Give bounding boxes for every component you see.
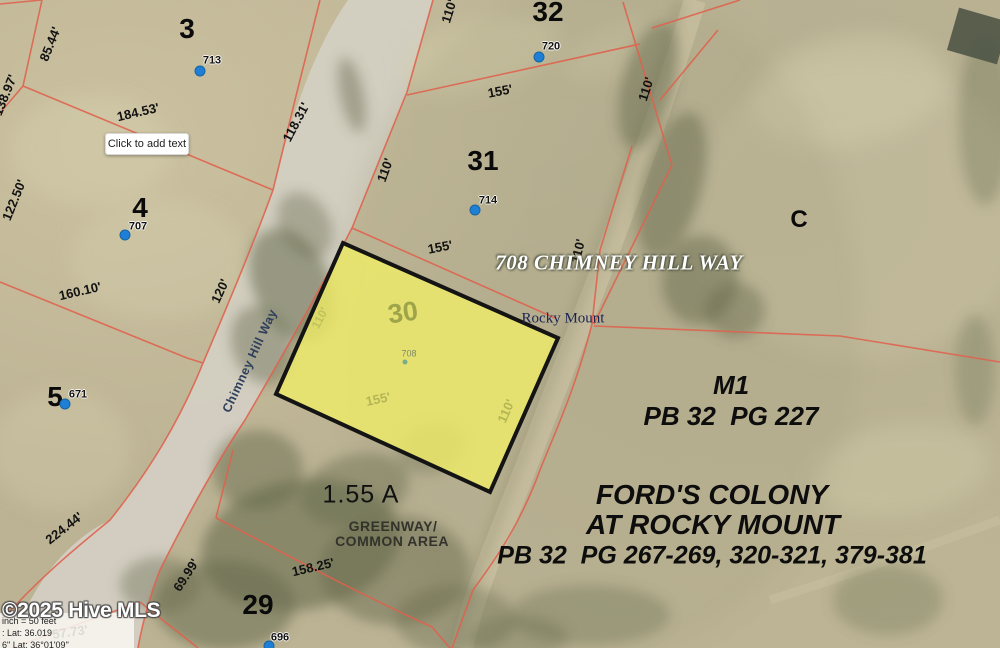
- click-to-add-text-label: Click to add text: [108, 138, 186, 150]
- greenway-label-2: COMMON AREA: [335, 534, 449, 548]
- greenway-label-1: GREENWAY/: [349, 519, 438, 533]
- mls-watermark: ©2025 Hive MLS: [2, 599, 160, 623]
- address-banner: 708 CHIMNEY HILL WAY: [495, 253, 742, 274]
- parcel-marker-label: 707: [129, 222, 147, 233]
- parcel-marker-label: 696: [271, 633, 289, 644]
- click-to-add-text-box[interactable]: Click to add text: [105, 133, 189, 155]
- subdivision-plat-ref: PB 32 PG 267-269, 320-321, 379-381: [497, 544, 926, 569]
- lot-number-31: 31: [467, 147, 498, 175]
- parcel-marker-label: 720: [542, 42, 560, 53]
- lot-number-29: 29: [242, 591, 273, 619]
- section-label: C: [790, 208, 807, 232]
- lot-number-3: 3: [179, 15, 195, 43]
- parcel-marker-label: 713: [203, 56, 221, 67]
- lot-number-32: 32: [532, 0, 563, 26]
- zoning-code: M1: [713, 372, 749, 398]
- subdivision-name-1: FORD'S COLONY: [596, 481, 828, 509]
- highlight-lot-number: 30: [386, 298, 420, 329]
- parcel-marker-label: 714: [479, 196, 497, 207]
- parcel-marker-label: 671: [69, 390, 87, 401]
- lot-number-4: 4: [132, 194, 148, 222]
- parcel-marker[interactable]: [195, 66, 206, 77]
- subdivision-name-2: AT ROCKY MOUNT: [586, 511, 840, 539]
- city-label: Rocky Mount: [522, 312, 605, 327]
- building: [947, 8, 1000, 65]
- parcel-marker[interactable]: [534, 52, 545, 63]
- zoning-plat-ref: PB 32 PG 227: [644, 403, 819, 429]
- plat-map-canvas[interactable]: 85.44' 138.97' 184.53' 118.31' 122.50' 1…: [0, 0, 1000, 648]
- latitude-dms-text: 6" Lat: 36°01'09": [2, 639, 130, 648]
- lot-area-label: 1.55 A: [323, 483, 400, 508]
- highlight-parcel-number: 708: [401, 350, 416, 359]
- latitude-text: : Lat: 36.019: [2, 627, 130, 639]
